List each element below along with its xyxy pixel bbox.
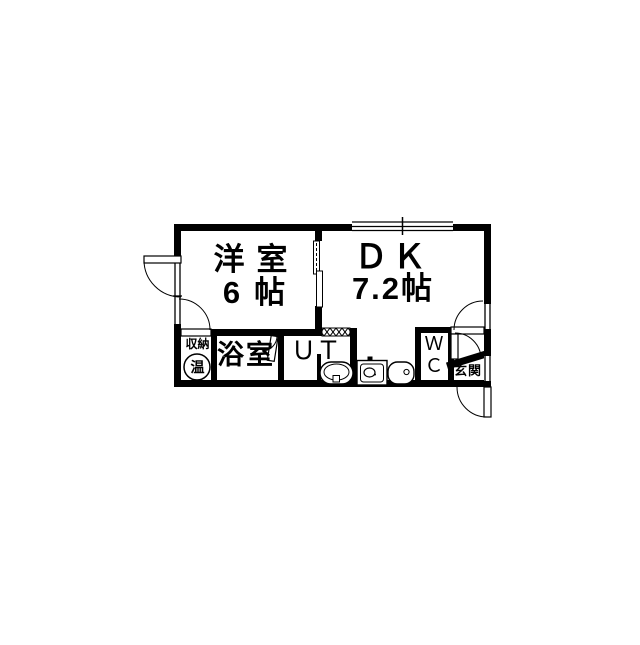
stove-counter — [388, 362, 414, 384]
wc-label-line2: Ｃ — [419, 356, 449, 378]
entrance-label: 玄関 — [453, 364, 483, 378]
floorplan: 洋室 6帖 ＤＫ 7.2帖 浴室 ＵＴ Ｗ Ｃ 収納 温 玄関 — [0, 0, 640, 640]
wc-label-line1: Ｗ — [419, 334, 449, 356]
utility-folding-door — [322, 328, 350, 336]
water-heater-label: 温 — [184, 360, 211, 375]
wc-label: Ｗ Ｃ — [419, 334, 449, 378]
western-room-size: 6帖 — [180, 276, 328, 310]
wall-right-upper — [484, 224, 491, 304]
utility-label: ＵＴ — [283, 337, 349, 365]
right-wall-window — [484, 304, 491, 329]
washing-machine-pan — [320, 362, 353, 384]
entrance-doorway — [484, 356, 491, 381]
western-room-label: 洋室 — [178, 243, 323, 277]
wall-right-lower — [484, 381, 491, 387]
wall-westroom-bottom — [211, 329, 322, 336]
bathroom-label: 浴室 — [208, 340, 284, 370]
dk-label: ＤＫ — [325, 240, 460, 274]
storage-label: 収納 — [182, 338, 213, 351]
dk-size: 7.2帖 — [328, 272, 458, 306]
wall-wc-top — [415, 327, 454, 333]
wall-room-divider-upper — [315, 231, 322, 241]
floorplan-drawing — [0, 0, 640, 640]
wall-room-divider-lower — [315, 306, 322, 336]
kitchen-sink — [357, 357, 387, 386]
